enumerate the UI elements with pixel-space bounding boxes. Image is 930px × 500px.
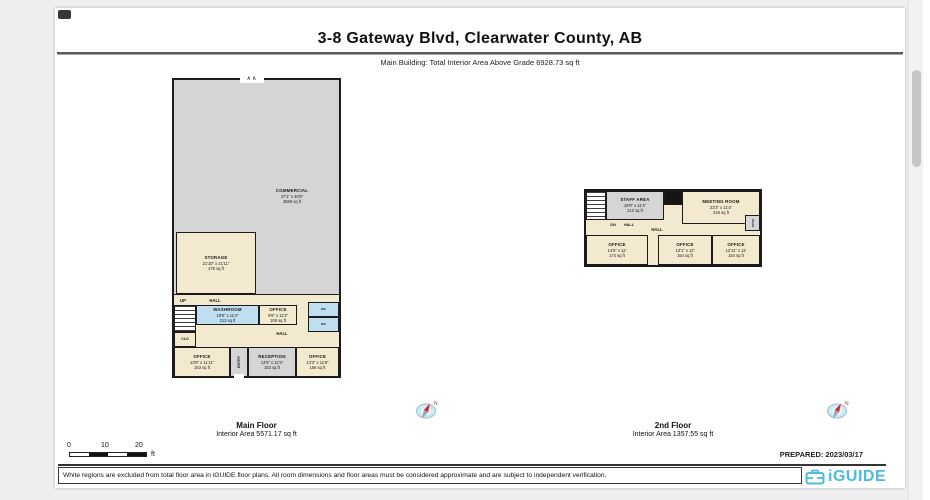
shaft <box>664 191 682 205</box>
scale-tick: 20 <box>135 442 143 449</box>
double-door-icon: ∧∧ <box>240 77 264 83</box>
hall-label: HALL <box>200 298 230 303</box>
floor-area: Interior Area 1357.55 sq ft <box>584 431 762 438</box>
room-label: WC <box>321 308 326 311</box>
room-office-mid: OFFICE 9'9" x 11'3" 109 sq ft <box>259 305 297 325</box>
room-label: STOR <box>751 219 755 227</box>
main-floor-plan: COMMERCIAL 47'1" x 49'5" 3559 sq ft ∧∧ S… <box>172 78 341 378</box>
hall-small-label: HALL <box>618 223 640 227</box>
room-wc-upper: WC <box>308 302 339 317</box>
room-label: STAFF AREA 18'9" x 11'4" 212 sq ft <box>620 197 649 213</box>
corner-mark <box>58 10 71 19</box>
room-reception: RECEPTION 13'5" x 12'4" 163 sq ft <box>248 347 296 377</box>
room-office-left: OFFICE 13'8" x 11'11" 163 sq ft <box>174 347 230 377</box>
entry-door-gap <box>234 374 244 378</box>
room-wc-lower: WC <box>308 317 339 332</box>
document-page: 3-8 Gateway Blvd, Clearwater County, AB … <box>55 8 905 488</box>
room-storage-closet: STOR <box>745 215 760 231</box>
stairs-up <box>174 305 196 332</box>
room-label: OFFICE 13'1" x 12' 154 sq ft <box>676 242 695 258</box>
scale-segment <box>108 453 127 456</box>
up-label: UP <box>177 298 189 303</box>
scale-segment <box>89 453 108 456</box>
room-label: COMMERCIAL 47'1" x 49'5" 3559 sq ft <box>257 188 327 204</box>
scrollbar-track[interactable] <box>908 0 923 500</box>
room-staff-area: STAFF AREA 18'9" x 11'4" 212 sq ft <box>606 191 664 220</box>
scale-tick: 0 <box>67 442 71 449</box>
room-washroom: WASHROOM 18'9" x 11'4" 212 sq ft <box>196 305 259 325</box>
svg-text:N: N <box>434 401 438 407</box>
scrollbar-thumb[interactable] <box>912 70 921 167</box>
room-label: WC <box>321 323 326 326</box>
room-label: WASHROOM 18'9" x 11'4" 212 sq ft <box>213 307 241 323</box>
room-office-right: OFFICE 13'3" x 11'9" 156 sq ft <box>296 347 339 377</box>
scale-bar: 0 10 20 ft <box>65 442 175 464</box>
room-label: OFFICE 9'9" x 11'3" 109 sq ft <box>268 307 288 323</box>
floor-name: Main Floor <box>172 421 341 430</box>
stairs-down <box>586 191 606 220</box>
room-label: OFFICE 13'3" x 11'9" 156 sq ft <box>306 354 328 370</box>
compass-icon: N <box>413 399 441 421</box>
prepared-date: PREPARED: 2023/03/17 <box>780 450 863 459</box>
room-label: ENTRY <box>237 356 241 368</box>
room-label: RECEPTION 13'5" x 12'4" 163 sq ft <box>258 354 285 370</box>
scale-segment <box>70 453 89 456</box>
iguide-logo: iGUIDE <box>805 466 886 488</box>
room-label: MEETING ROOM 23'3" x 11'4" 246 sq ft <box>702 199 739 215</box>
floor-area: Interior Area 5571.17 sq ft <box>172 431 341 438</box>
scale-bar-segments <box>69 452 147 457</box>
room-label: CLO <box>181 338 189 342</box>
brand-name: iGUIDE <box>828 468 886 486</box>
room-label: OFFICE 12'11" x 12' 154 sq ft <box>726 242 747 258</box>
room-office-3: OFFICE 12'11" x 12' 154 sq ft <box>712 235 760 265</box>
compass-icon: N <box>824 399 852 421</box>
hall-lower-label: HALL <box>264 331 300 336</box>
second-floor-caption: 2nd Floor Interior Area 1357.55 sq ft <box>584 421 762 438</box>
svg-text:N: N <box>845 401 849 407</box>
disclaimer-text: White regions are excluded from total fl… <box>58 467 802 484</box>
page-subtitle: Main Building: Total Interior Area Above… <box>55 58 905 67</box>
hall-label: HALL <box>642 227 672 232</box>
floor-name: 2nd Floor <box>584 421 762 430</box>
room-label: STORAGE 21'10" x 21'11" 479 sq ft <box>203 255 230 271</box>
right-margin <box>923 0 930 500</box>
second-floor-plan: STAFF AREA 18'9" x 11'4" 212 sq ft MEETI… <box>584 189 762 267</box>
main-floor-caption: Main Floor Interior Area 5571.17 sq ft <box>172 421 341 438</box>
screenshot-stage: 3-8 Gateway Blvd, Clearwater County, AB … <box>0 0 930 500</box>
footer-divider <box>58 464 886 466</box>
room-office-2: OFFICE 13'1" x 12' 154 sq ft <box>658 235 712 265</box>
scale-unit: ft <box>151 451 155 458</box>
room-entry: ENTRY <box>230 347 248 377</box>
room-closet: CLO <box>174 332 196 347</box>
briefcase-icon <box>805 469 825 485</box>
room-label: OFFICE 14'6" x 12' 174 sq ft <box>608 242 627 258</box>
room-storage: STORAGE 21'10" x 21'11" 479 sq ft <box>176 232 256 294</box>
title-divider <box>57 52 903 55</box>
page-title: 3-8 Gateway Blvd, Clearwater County, AB <box>55 30 905 48</box>
scale-segment <box>127 453 146 456</box>
room-office-1: OFFICE 14'6" x 12' 174 sq ft <box>586 235 648 265</box>
room-label: OFFICE 13'8" x 11'11" 163 sq ft <box>190 354 214 370</box>
scale-tick: 10 <box>101 442 109 449</box>
